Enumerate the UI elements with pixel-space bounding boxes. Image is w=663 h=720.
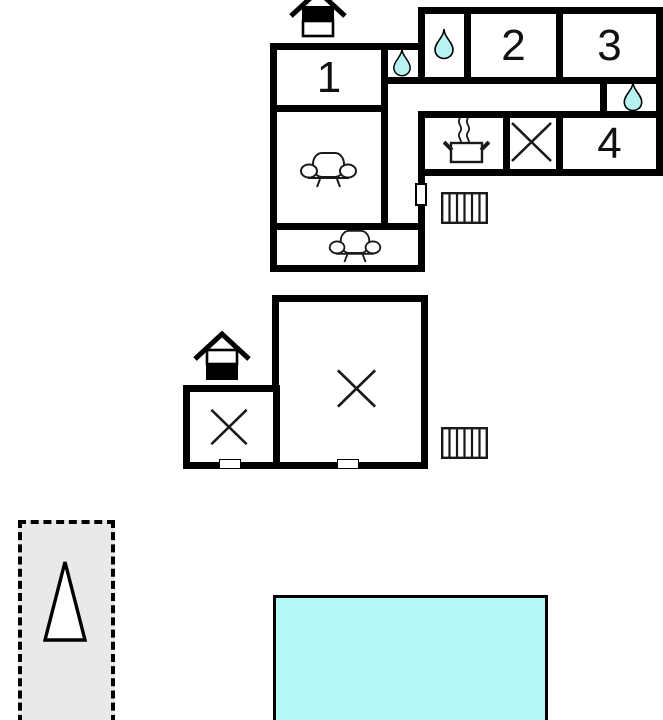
swimming-pool [273,595,548,720]
storey-indicator-ground-icon [193,331,251,383]
water-drop-icon [433,26,455,62]
floor-plan-canvas: 1 2 3 4 [0,0,663,720]
room-3: 3 [556,7,663,84]
tree-triangle-icon [43,560,87,642]
sofa-icon [300,151,357,188]
stairs-icon [441,192,488,224]
water-drop-icon [622,81,644,112]
hallway-junction [388,84,418,118]
storey-indicator-upper-icon [289,0,347,40]
door-opening [415,183,427,206]
parking-area [18,520,115,720]
stairs-icon [441,427,488,459]
room-1-label: 1 [317,56,341,100]
cross-table-icon [510,121,553,163]
room-4: 4 [556,111,663,176]
room-2-label: 2 [501,24,525,68]
cross-table-icon [336,368,377,409]
room-3-label: 3 [597,24,621,68]
room-1: 1 [270,43,388,112]
sofa-icon [326,229,384,263]
room-4-label: 4 [597,122,621,166]
door-opening [337,459,359,469]
room-2: 2 [464,7,563,84]
door-opening [219,459,241,469]
cross-table-icon [209,408,249,446]
water-drop-icon [392,47,412,78]
stove-pot-icon [443,112,490,165]
